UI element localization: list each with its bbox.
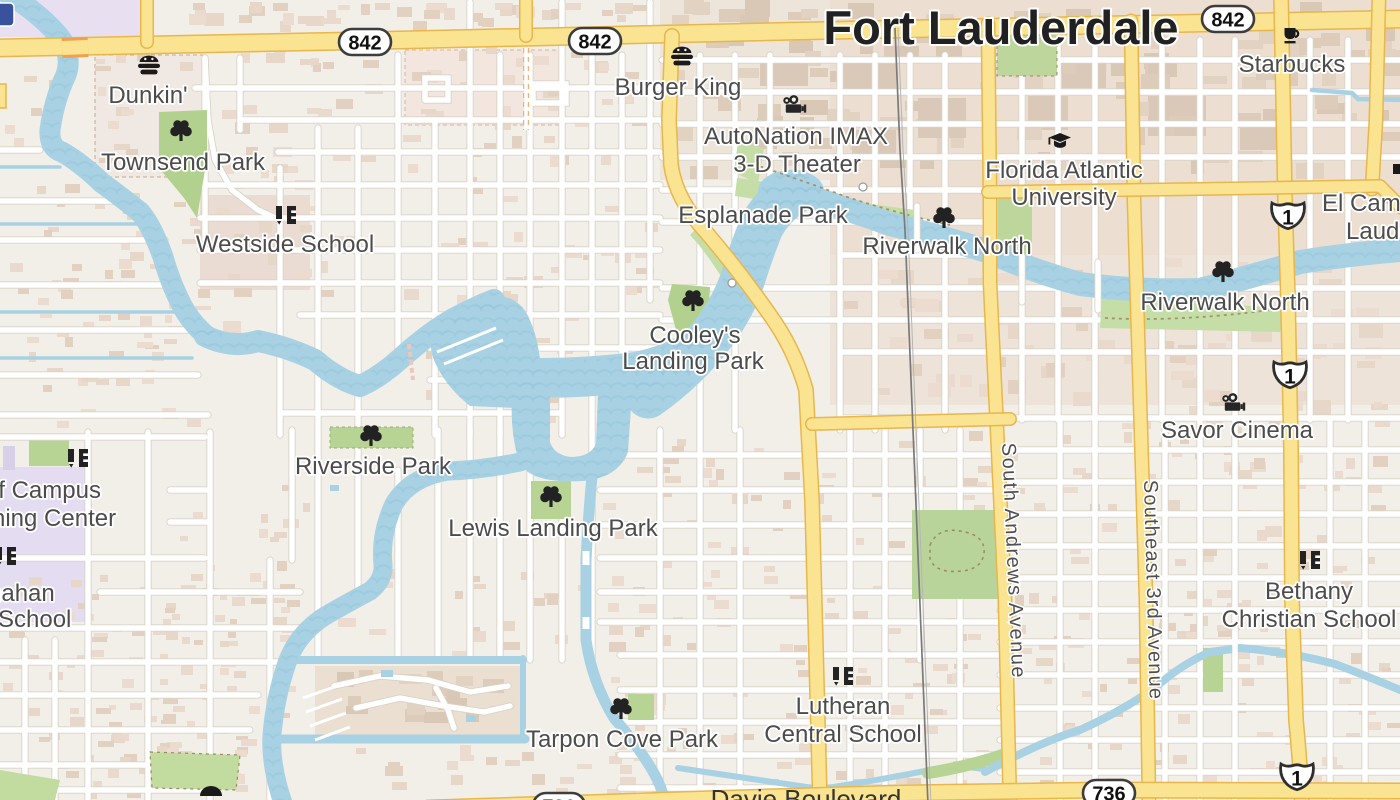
svg-text:rning Center: rning Center	[0, 505, 116, 532]
svg-text:736: 736	[1092, 784, 1125, 800]
svg-text:Davie Boulevard: Davie Boulevard	[711, 784, 902, 800]
svg-text:nahan: nahan	[0, 580, 55, 607]
svg-text:Dunkin': Dunkin'	[108, 82, 187, 109]
svg-text:University: University	[1011, 184, 1116, 211]
svg-text:842: 842	[348, 33, 381, 55]
svg-text:3-D Theater: 3-D Theater	[733, 151, 861, 178]
svg-text:Westside School: Westside School	[196, 231, 374, 258]
svg-text:Bethany: Bethany	[1265, 578, 1353, 605]
svg-text:Landing Park: Landing Park	[622, 348, 764, 375]
svg-text:842: 842	[578, 32, 611, 54]
svg-text:El Camino: El Camino	[1322, 190, 1400, 217]
svg-text:Lutheran: Lutheran	[796, 693, 891, 720]
svg-text:842: 842	[1211, 10, 1244, 32]
svg-text:Savor Cinema: Savor Cinema	[1161, 417, 1314, 444]
svg-text:Starbucks: Starbucks	[1239, 51, 1346, 78]
svg-text:ff Campus: ff Campus	[0, 477, 101, 504]
svg-text:1: 1	[1284, 366, 1296, 389]
svg-text:Christian School: Christian School	[1222, 606, 1397, 633]
svg-text:Riverside Park: Riverside Park	[295, 453, 452, 480]
svg-text:Florida Atlantic: Florida Atlantic	[985, 157, 1142, 184]
svg-text:Lewis Landing Park: Lewis Landing Park	[448, 515, 658, 542]
svg-text:AutoNation IMAX: AutoNation IMAX	[704, 123, 888, 150]
svg-text:Lauderdale: Lauderdale	[1346, 218, 1400, 245]
svg-text:1: 1	[1291, 768, 1303, 791]
svg-text:Townsend Park: Townsend Park	[101, 149, 266, 176]
svg-text:Riverwalk North: Riverwalk North	[1140, 289, 1309, 316]
svg-text:Esplanade Park: Esplanade Park	[678, 202, 848, 229]
svg-text:1: 1	[1282, 207, 1294, 230]
svg-text:Cooley's: Cooley's	[649, 322, 740, 349]
svg-text:Tarpon Cove Park: Tarpon Cove Park	[526, 726, 719, 753]
svg-text:736: 736	[542, 797, 575, 800]
svg-text:School: School	[0, 606, 71, 633]
svg-text:Riverwalk North: Riverwalk North	[862, 233, 1031, 260]
svg-text:Central School: Central School	[764, 721, 921, 748]
svg-text:Burger King: Burger King	[615, 74, 742, 101]
svg-text:Fort Lauderdale: Fort Lauderdale	[823, 1, 1178, 54]
